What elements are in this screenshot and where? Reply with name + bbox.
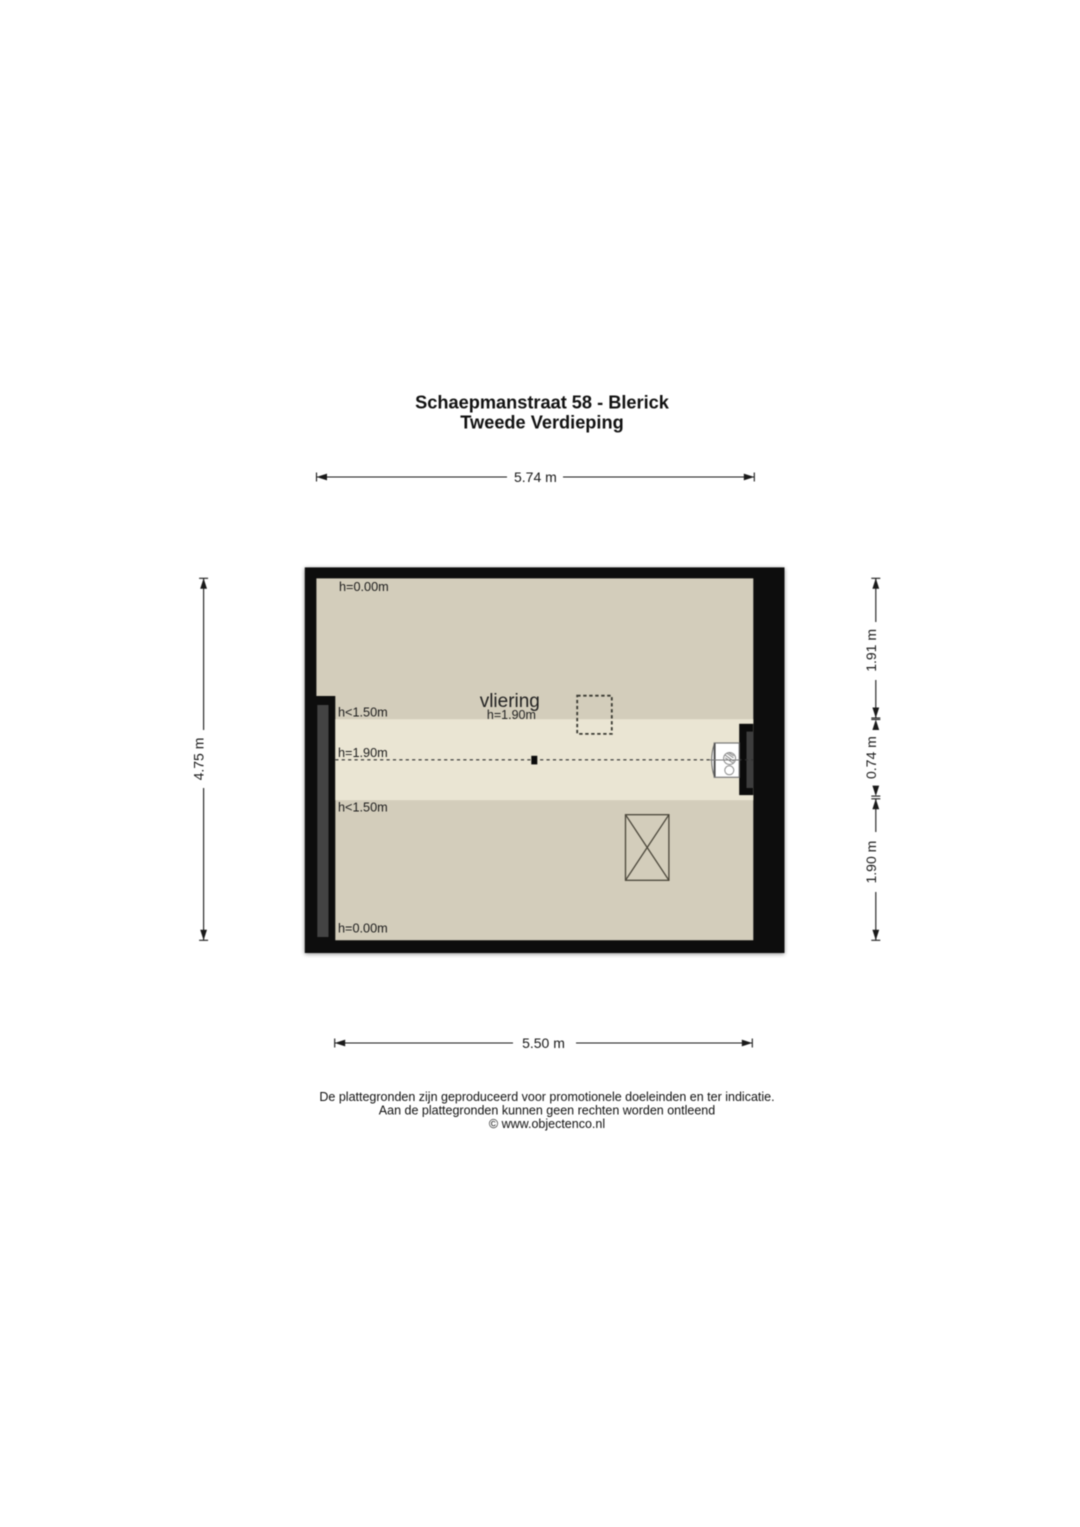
svg-text:1.91 m: 1.91 m	[863, 629, 879, 672]
svg-text:h=0.00m: h=0.00m	[338, 922, 388, 936]
svg-text:5.50 m: 5.50 m	[522, 1035, 565, 1051]
svg-text:h<1.50m: h<1.50m	[338, 705, 388, 719]
svg-text:Tweede Verdieping: Tweede Verdieping	[460, 413, 623, 433]
svg-text:Schaepmanstraat 58 - Blerick: Schaepmanstraat 58 - Blerick	[415, 393, 670, 413]
svg-text:4.75 m: 4.75 m	[191, 738, 207, 781]
svg-text:De plattegronden zijn geproduc: De plattegronden zijn geproduceerd voor …	[319, 1090, 774, 1104]
svg-text:h<1.50m: h<1.50m	[338, 801, 388, 815]
svg-text:h=1.90m: h=1.90m	[487, 708, 536, 722]
svg-text:h=1.90m: h=1.90m	[338, 746, 388, 760]
svg-text:0.74 m: 0.74 m	[863, 736, 879, 779]
svg-text:1.90 m: 1.90 m	[863, 841, 879, 884]
svg-text:h=0.00m: h=0.00m	[339, 580, 389, 594]
svg-text:Aan de plattegronden kunnen ge: Aan de plattegronden kunnen geen rechten…	[379, 1104, 715, 1118]
svg-text:5.74 m: 5.74 m	[514, 469, 557, 485]
svg-text:© www.objectenco.nl: © www.objectenco.nl	[489, 1117, 605, 1131]
